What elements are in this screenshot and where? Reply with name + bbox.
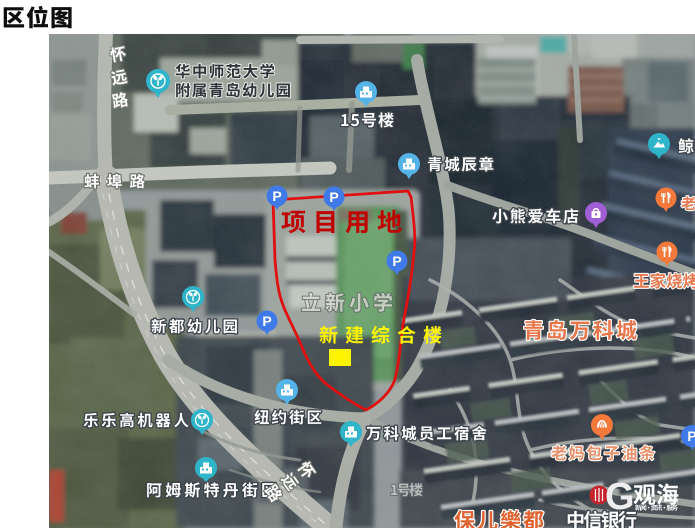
- svg-text:G: G: [605, 476, 635, 518]
- svg-text:P: P: [272, 188, 281, 204]
- svg-text:P: P: [262, 313, 271, 329]
- svg-text:P: P: [687, 428, 695, 444]
- svg-text:P: P: [392, 253, 401, 269]
- svg-text:P: P: [329, 189, 338, 205]
